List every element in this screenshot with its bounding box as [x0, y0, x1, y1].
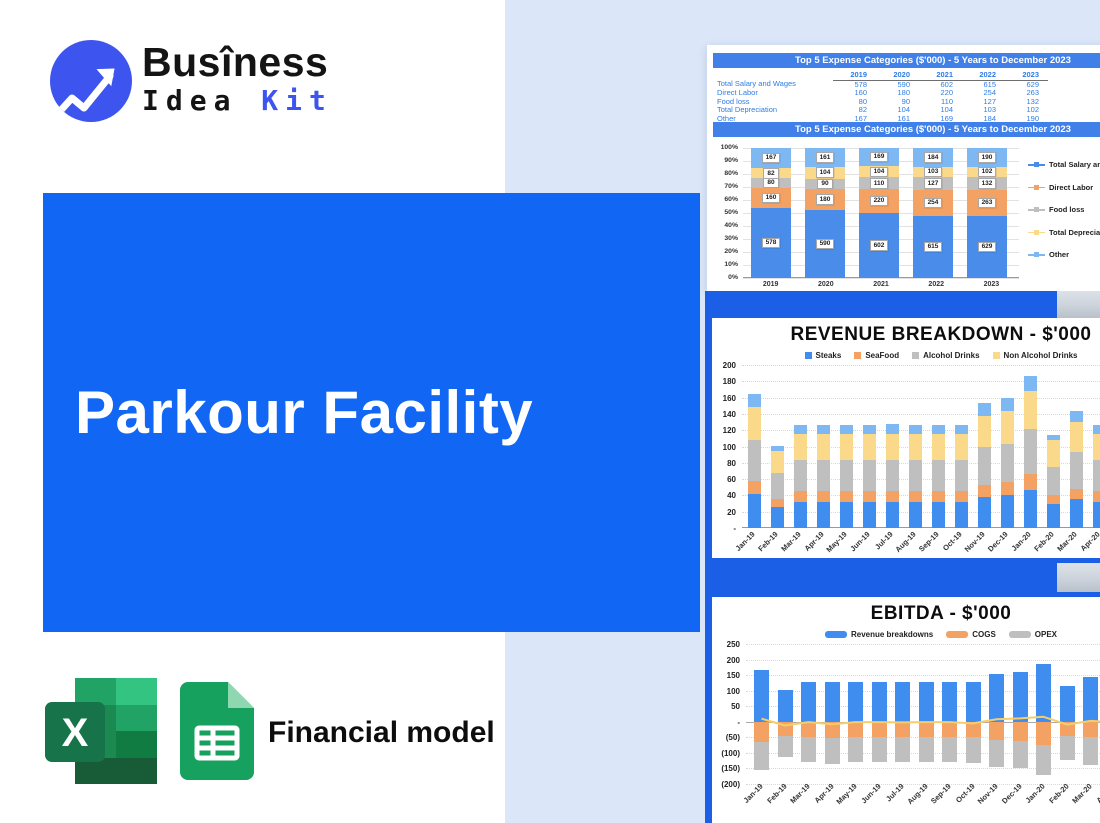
data-label: 80 [763, 178, 778, 189]
data-label: 629 [978, 242, 997, 253]
data-label: 590 [816, 239, 835, 250]
gridline [746, 644, 1100, 645]
legend-marker [1028, 185, 1045, 190]
bar-segment: 615 [913, 216, 953, 278]
legend-item: Steaks [805, 351, 842, 360]
bar-segment [909, 460, 922, 491]
cogs-bar [754, 722, 769, 742]
x-tick-label: 2022 [909, 281, 964, 288]
cogs-bar [895, 722, 910, 738]
bar-segment: 161 [805, 148, 845, 167]
legend-square [1034, 230, 1039, 235]
cogs-bar [825, 722, 840, 738]
expense-chart-plotwrap: 1678280160578161104901805901691041102206… [743, 144, 1019, 288]
bar-segment [771, 499, 784, 507]
legend-square [1034, 185, 1039, 190]
stacked-bar: 16110490180590 [805, 148, 845, 278]
legend-item: COGS [946, 630, 996, 639]
legend-marker [1028, 230, 1045, 235]
data-label: 263 [978, 198, 997, 209]
cell-value: 180 [876, 89, 919, 98]
legend-item: Non Alcohol Drinks [993, 351, 1078, 360]
bar-segment [771, 507, 784, 528]
y-tick-label: - [733, 524, 736, 533]
bar-segment: 127 [913, 177, 953, 190]
data-label: 103 [924, 167, 943, 178]
bar-segment [932, 434, 945, 460]
data-label: 102 [978, 167, 997, 178]
bar-segment [840, 425, 853, 435]
data-label: 602 [870, 240, 889, 251]
legend-label: Total Salary and Wages [1049, 160, 1100, 169]
table-row: Total Depreciation82104104103102 [715, 106, 1048, 115]
bar-segment: 590 [805, 210, 845, 278]
panel-ebitda: EBITDA - $'000 Revenue breakdownsCOGSOPE… [705, 590, 1100, 823]
brand-wordmark: Busîness Idea Kit [142, 40, 333, 118]
bar-segment: 602 [859, 213, 899, 278]
stacked-bar [1047, 365, 1060, 528]
bar-segment: 90 [805, 179, 845, 189]
expense-chart-title: Top 5 Expense Categories ($'000) - 5 Yea… [713, 122, 1100, 137]
bar-segment [1047, 467, 1060, 496]
expense-table-title: Top 5 Expense Categories ($'000) - 5 Yea… [713, 53, 1100, 68]
data-label: 180 [816, 194, 835, 205]
cogs-bar [848, 722, 863, 738]
data-label: 127 [924, 178, 943, 189]
revenue-chart-legend: SteaksSeaFoodAlcohol DrinksNon Alcohol D… [712, 350, 1100, 361]
product-type-label: Financial model [268, 716, 495, 750]
opex-bar [966, 737, 981, 763]
y-tick-label: 120 [723, 426, 736, 435]
brand-name: Busîness [142, 40, 333, 84]
ebitda-chart-plotwrap: Jan-19Feb-19Mar-19Apr-19May-19Jun-19Jul-… [746, 644, 1100, 784]
table-row: Direct Labor160180220254263 [715, 89, 1048, 98]
bar-segment [1047, 504, 1060, 528]
bar-segment [794, 502, 807, 528]
legend-item: Other [1028, 250, 1100, 259]
x-tick-label: 2019 [743, 281, 798, 288]
legend-label: Alcohol Drinks [923, 351, 979, 360]
cogs-bar [989, 722, 1004, 741]
revenue-bar [919, 682, 934, 722]
legend-label: Direct Labor [1049, 183, 1093, 192]
bar-segment: 80 [751, 178, 791, 188]
opex-bar [754, 742, 769, 770]
y-tick-label: (50) [726, 733, 740, 742]
y-tick-label: 200 [727, 656, 740, 665]
ebitda-chart-plot [746, 644, 1100, 784]
legend-label: Non Alcohol Drinks [1004, 351, 1078, 360]
legend-square [1034, 207, 1039, 212]
cogs-bar [1013, 722, 1028, 742]
year-header: 2020 [876, 71, 919, 80]
bar-segment [1024, 474, 1037, 489]
poster-canvas: Busîness Idea Kit Parkour Facility X [0, 0, 1100, 823]
bar-segment [817, 502, 830, 528]
revenue-bar [1013, 672, 1028, 721]
bar-segment [1093, 491, 1100, 502]
legend-label: Steaks [816, 351, 842, 360]
bar-segment [794, 460, 807, 491]
legend-item: Alcohol Drinks [912, 351, 979, 360]
cogs-bar [966, 722, 981, 738]
revenue-bar [848, 682, 863, 722]
table-row: Total Salary and Wages578590602615629 [715, 80, 1048, 89]
cell-value: 160 [833, 89, 876, 98]
bar-segment: 578 [751, 208, 791, 278]
revenue-bar [895, 682, 910, 722]
y-tick-label: 70% [724, 183, 738, 190]
data-label: 132 [978, 178, 997, 189]
data-label: 615 [924, 242, 943, 253]
bar-segment [1070, 411, 1083, 422]
stacked-bar [748, 365, 761, 528]
bar-segment: 254 [913, 190, 953, 216]
bar-segment [1093, 502, 1100, 528]
hero-banner: Parkour Facility [43, 193, 700, 632]
y-tick-label: 180 [723, 377, 736, 386]
bar-segment [794, 425, 807, 435]
cogs-bar [778, 722, 793, 736]
legend-swatch [854, 352, 861, 359]
opex-bar [942, 737, 957, 761]
bar-segment [932, 491, 945, 502]
legend-label: Revenue breakdowns [851, 630, 933, 639]
y-tick-label: 200 [723, 361, 736, 370]
legend-label: OPEX [1035, 630, 1057, 639]
y-tick-label: 100 [723, 443, 736, 452]
ebitda-chart-title: EBITDA - $'000 [712, 603, 1100, 625]
revenue-bar [872, 682, 887, 722]
y-tick-label: 150 [727, 671, 740, 680]
y-tick-label: - [737, 718, 740, 727]
stacked-bar: 169104110220602 [859, 148, 899, 278]
legend-item: SeaFood [854, 351, 899, 360]
stacked-bar [955, 365, 968, 528]
bar-segment: 180 [805, 189, 845, 210]
cogs-bar [1060, 722, 1075, 736]
bar-segment [1001, 482, 1014, 495]
legend-swatch [805, 352, 812, 359]
opex-bar [825, 738, 840, 764]
stacked-bar [1070, 365, 1083, 528]
revenue-bar [1060, 686, 1075, 721]
excel-icon: X [45, 678, 157, 789]
gradient-edge-block [1057, 563, 1100, 592]
y-tick-label: 90% [724, 157, 738, 164]
expense-chart-plot: 1678280160578161104901805901691041102206… [743, 148, 1019, 278]
revenue-bar [754, 670, 769, 721]
opex-bar [1060, 736, 1075, 760]
revenue-bar [966, 682, 981, 722]
opex-bar [989, 740, 1004, 766]
stacked-bar [1093, 365, 1100, 528]
stacked-bar [909, 365, 922, 528]
bar-segment [863, 425, 876, 435]
brand-subname-kit: Kit [261, 84, 333, 117]
panel-revenue-breakdown: REVENUE BREAKDOWN - $'000 SteaksSeaFoodA… [705, 311, 1100, 565]
legend-marker [1028, 252, 1045, 257]
y-tick-label: 40 [727, 491, 736, 500]
separator-strip [705, 291, 1100, 312]
y-tick-label: 0% [728, 274, 738, 281]
brand-subname: Idea Kit [142, 84, 333, 118]
stacked-bar: 184103127254615 [913, 148, 953, 278]
bar-segment [1070, 422, 1083, 452]
google-sheets-icon [180, 682, 254, 785]
bar-segment [840, 502, 853, 528]
stacked-bar [794, 365, 807, 528]
revenue-bar [1083, 677, 1098, 721]
y-tick-label: 100 [727, 687, 740, 696]
bar-segment: 104 [805, 167, 845, 179]
bar-segment [863, 434, 876, 460]
revenue-chart: 20018016014012010080604020- Jan-19Feb-19… [712, 365, 1100, 528]
revenue-bar [825, 682, 840, 722]
cogs-bar [872, 722, 887, 738]
data-label: 169 [870, 152, 889, 163]
bar-segment [955, 460, 968, 491]
bar-segment [1093, 434, 1100, 460]
bar-segment [955, 425, 968, 435]
y-tick-label: 30% [724, 235, 738, 242]
bar-segment [932, 460, 945, 491]
bar-segment [794, 491, 807, 502]
y-tick-label: (200) [721, 780, 740, 789]
cogs-bar [1083, 722, 1098, 738]
opex-bar [872, 737, 887, 761]
y-tick-label: 100% [721, 144, 738, 151]
bar-segment [817, 460, 830, 491]
stacked-bar: 1678280160578 [751, 148, 791, 278]
legend-swatch [825, 631, 847, 638]
opex-bar [1083, 737, 1098, 765]
bar-segment [932, 502, 945, 528]
trend-arrow-circle-icon [48, 38, 134, 124]
bar-segment [817, 425, 830, 435]
legend-swatch [1009, 631, 1031, 638]
bar-segment [863, 491, 876, 502]
bar-segment: 220 [859, 189, 899, 213]
y-tick-label: 160 [723, 394, 736, 403]
y-tick-label: (150) [721, 764, 740, 773]
y-tick-label: 140 [723, 410, 736, 419]
data-label: 220 [870, 196, 889, 207]
bar-segment [748, 407, 761, 440]
data-label: 578 [762, 238, 781, 249]
x-tick-label: 2021 [853, 281, 908, 288]
stacked-bar [1001, 365, 1014, 528]
revenue-bar [1036, 664, 1051, 722]
data-label: 104 [870, 167, 889, 178]
y-tick-label: 80 [727, 459, 736, 468]
y-tick-label: 40% [724, 222, 738, 229]
data-label: 254 [924, 198, 943, 209]
legend-label: SeaFood [865, 351, 899, 360]
bar-segment: 184 [913, 148, 953, 167]
bar-segment: 167 [751, 148, 791, 168]
legend-marker [1028, 162, 1045, 167]
bar-segment [1047, 440, 1060, 467]
bar-segment [771, 473, 784, 498]
y-tick-label: 250 [727, 640, 740, 649]
bar-segment [1001, 495, 1014, 528]
opex-bar [778, 736, 793, 757]
y-tick-label: 60% [724, 196, 738, 203]
legend-swatch [946, 631, 968, 638]
bar-segment [978, 403, 991, 415]
bar-segment [748, 494, 761, 528]
ebitda-chart-x-axis: Jan-19Feb-19Mar-19Apr-19May-19Jun-19Jul-… [746, 784, 1100, 823]
bar-segment [863, 460, 876, 491]
data-label: 161 [816, 152, 835, 163]
x-tick-label: 2023 [964, 281, 1019, 288]
stacked-bar [1024, 365, 1037, 528]
stacked-bar [886, 365, 899, 528]
opex-bar [848, 737, 863, 761]
legend-swatch [993, 352, 1000, 359]
bar-segment [978, 416, 991, 448]
bar-segment: 104 [859, 166, 899, 177]
stacked-bar [932, 365, 945, 528]
bar-segment [886, 491, 899, 502]
opex-bar [1036, 745, 1051, 775]
expense-chart-y-axis: 100%90%80%70%60%50%40%30%20%10%0% [713, 144, 743, 282]
bar-segment: 190 [967, 148, 1007, 167]
legend-label: Other [1049, 250, 1069, 259]
bar-segment [1024, 490, 1037, 528]
gridline [746, 660, 1100, 661]
y-tick-label: (100) [721, 749, 740, 758]
bar-segment [886, 460, 899, 491]
bar-segment [1070, 499, 1083, 528]
ebitda-chart: 25020015010050-(50)(100)(150)(200) Jan-1… [712, 644, 1100, 784]
legend-square [1034, 252, 1039, 257]
expense-chart-x-axis: 20192020202120222023 [743, 281, 1019, 288]
data-label: 184 [924, 152, 943, 163]
bar-segment: 82 [751, 168, 791, 178]
legend-item: Food loss [1028, 205, 1100, 214]
revenue-bar [778, 690, 793, 721]
revenue-bar [942, 682, 957, 722]
bar-segment [978, 485, 991, 497]
bar-segment [794, 434, 807, 460]
brand-logo [48, 38, 134, 129]
bar-segment: 132 [967, 177, 1007, 190]
opex-bar [1013, 741, 1028, 767]
ebitda-chart-legend: Revenue breakdownsCOGSOPEX [712, 629, 1100, 640]
data-label: 90 [817, 179, 832, 190]
y-tick-label: 50% [724, 209, 738, 216]
bar-segment [978, 497, 991, 528]
bar-segment: 169 [859, 148, 899, 166]
cogs-bar [1036, 722, 1051, 745]
legend-item: Direct Labor [1028, 183, 1100, 192]
bar-segment [817, 491, 830, 502]
y-tick-label: 50 [731, 702, 740, 711]
bar-segment [1093, 460, 1100, 491]
bar-segment [771, 451, 784, 474]
bar-segment [840, 434, 853, 460]
bar-segment [817, 434, 830, 460]
legend-label: Total Depreciation [1049, 228, 1100, 237]
revenue-bar [989, 674, 1004, 722]
legend-item: Revenue breakdowns [825, 630, 933, 639]
bar-segment [909, 434, 922, 460]
bar-segment [1024, 391, 1037, 429]
legend-label: COGS [972, 630, 996, 639]
excel-x-letter: X [62, 711, 89, 755]
expense-chart: 100%90%80%70%60%50%40%30%20%10%0% 167828… [713, 144, 1100, 288]
bar-segment [909, 502, 922, 528]
opex-bar [919, 737, 934, 761]
data-label: 190 [978, 152, 997, 163]
stacked-bar: 190102132263629 [967, 148, 1007, 278]
bar-segment [1070, 452, 1083, 489]
legend-item: OPEX [1009, 630, 1057, 639]
bar-segment [955, 434, 968, 460]
bar-segment [1093, 425, 1100, 435]
bar-segment [748, 394, 761, 408]
bar-segment [1024, 429, 1037, 474]
legend-square [1034, 162, 1039, 167]
y-tick-label: 80% [724, 170, 738, 177]
opex-bar [801, 737, 816, 761]
cogs-bar [919, 722, 934, 738]
panel-expense-categories: Top 5 Expense Categories ($'000) - 5 Yea… [707, 45, 1100, 291]
bar-segment [1024, 376, 1037, 391]
legend-item: Total Salary and Wages [1028, 160, 1100, 169]
legend-marker [1028, 207, 1045, 212]
legend-swatch [912, 352, 919, 359]
stacked-bar [978, 365, 991, 528]
cell-value: 80 [833, 98, 876, 107]
stacked-bar [840, 365, 853, 528]
bar-segment [1001, 398, 1014, 410]
cogs-bar [801, 722, 816, 738]
bar-segment: 629 [967, 216, 1007, 278]
bar-segment: 110 [859, 177, 899, 189]
bar-segment [748, 440, 761, 481]
bar-segment [955, 491, 968, 502]
opex-bar [895, 737, 910, 762]
bar-segment [840, 491, 853, 502]
bar-segment [955, 502, 968, 528]
revenue-chart-plotwrap: Jan-19Feb-19Mar-19Apr-19May-19Jun-19Jul-… [742, 365, 1100, 528]
bar-segment: 103 [913, 167, 953, 177]
expense-chart-legend: Total Salary and WagesDirect LaborFood l… [1028, 160, 1100, 288]
year-header: 2021 [919, 71, 962, 80]
ebitda-chart-y-axis: 25020015010050-(50)(100)(150)(200) [716, 644, 746, 784]
y-tick-label: 20% [724, 248, 738, 255]
y-tick-label: 20 [727, 508, 736, 517]
bar-segment [840, 460, 853, 491]
bar-segment [748, 481, 761, 494]
bar-segment: 102 [967, 167, 1007, 177]
legend-item: Total Depreciation [1028, 228, 1100, 237]
bar-segment [886, 424, 899, 435]
revenue-chart-y-axis: 20018016014012010080604020- [716, 365, 742, 528]
data-label: 160 [762, 193, 781, 204]
year-header: 2023 [1005, 71, 1048, 80]
bar-segment [886, 434, 899, 460]
bar-segment: 263 [967, 190, 1007, 216]
bar-segment [1001, 444, 1014, 482]
brand-subname-idea: Idea [142, 84, 237, 117]
data-label: 104 [816, 167, 835, 178]
revenue-chart-plot [742, 365, 1100, 528]
bar-segment [1001, 411, 1014, 444]
